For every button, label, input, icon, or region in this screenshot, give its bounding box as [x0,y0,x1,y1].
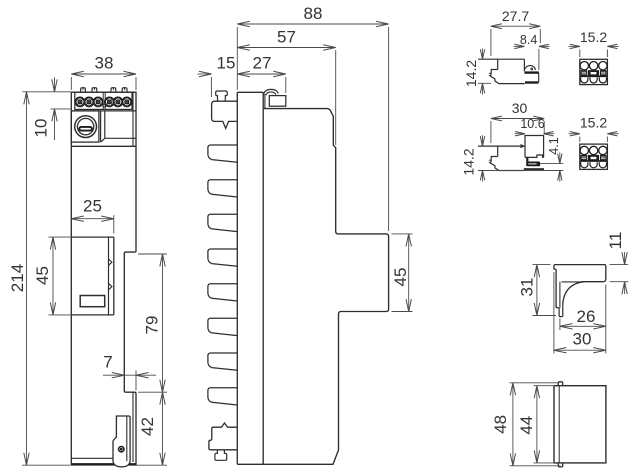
svg-text:38: 38 [95,54,114,73]
svg-text:88: 88 [304,4,323,23]
svg-text:10.6: 10.6 [520,117,544,131]
svg-text:44: 44 [517,416,536,435]
svg-text:26: 26 [577,307,596,326]
svg-text:25: 25 [83,197,102,216]
svg-text:30: 30 [573,330,592,349]
svg-text:45: 45 [391,268,410,287]
svg-text:42: 42 [138,417,157,436]
svg-text:8.4: 8.4 [520,33,537,47]
svg-text:214: 214 [8,264,27,292]
svg-text:15.2: 15.2 [580,29,607,45]
svg-text:10: 10 [32,119,51,138]
svg-text:14.2: 14.2 [461,148,477,175]
svg-text:14.2: 14.2 [463,60,479,87]
svg-text:30: 30 [512,100,528,116]
svg-text:79: 79 [143,316,162,335]
svg-text:4.1: 4.1 [547,137,561,154]
svg-text:57: 57 [277,28,296,47]
svg-text:7: 7 [103,353,112,372]
svg-text:31: 31 [518,278,537,297]
svg-text:11: 11 [606,232,625,250]
svg-text:15.2: 15.2 [580,115,607,131]
svg-text:15: 15 [217,54,236,73]
svg-text:48: 48 [491,415,510,434]
svg-text:45: 45 [33,266,52,285]
svg-text:27: 27 [253,54,272,73]
svg-text:27.7: 27.7 [502,8,529,24]
